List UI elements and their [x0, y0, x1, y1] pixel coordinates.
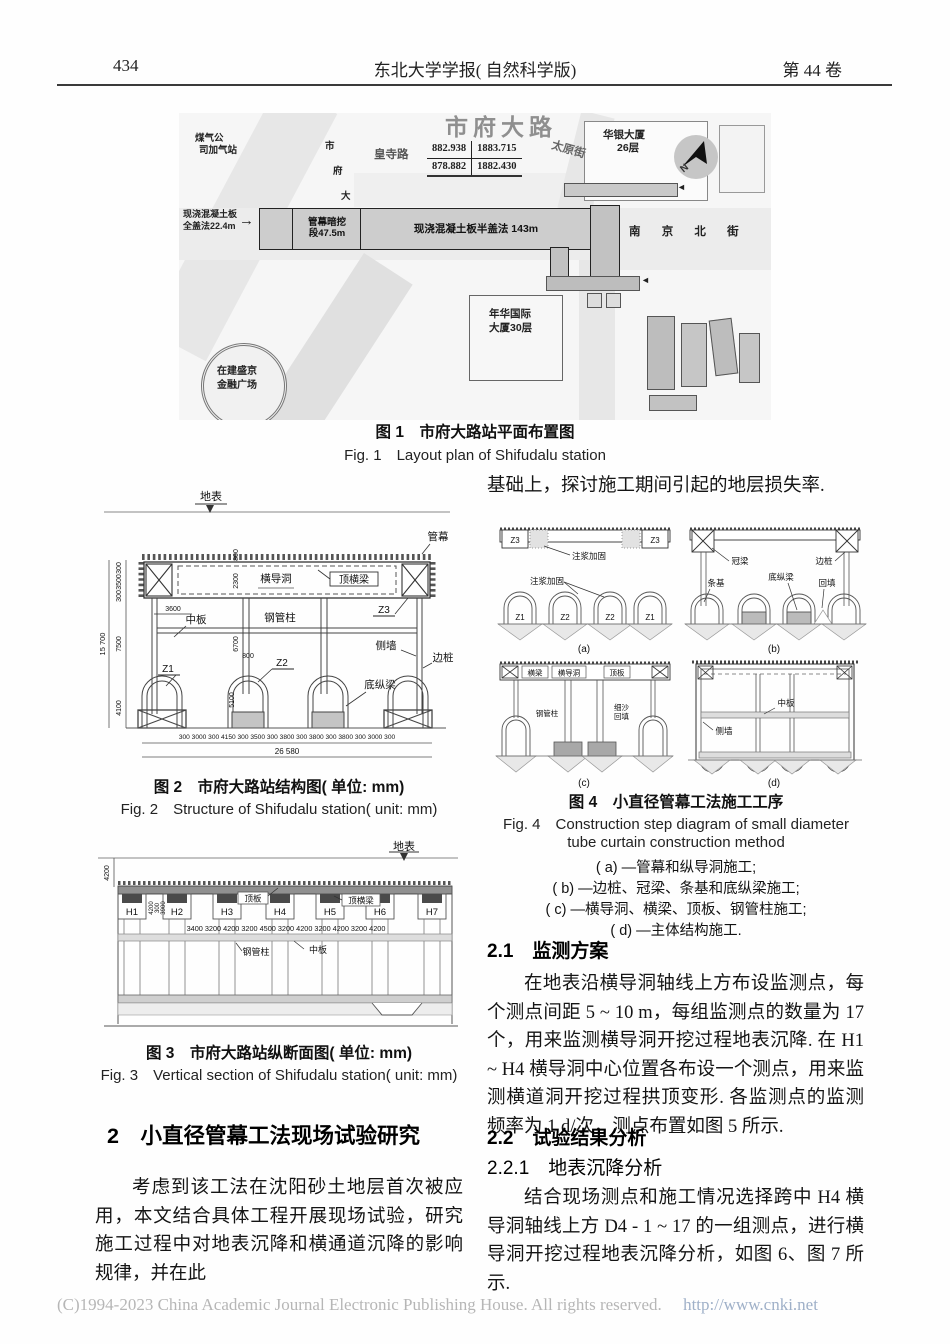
fig2-dim-5100: 5100: [229, 692, 236, 708]
fig4-caption-en1: Fig. 4 Construction step diagram of smal…: [487, 813, 865, 834]
fig4b-tag: (b): [768, 644, 780, 654]
fig4c-label-beam: 横梁: [528, 668, 543, 678]
fig2-dim-4100: 4100: [116, 700, 123, 716]
journal-page: 434 东北大学学报( 自然科学版) 第 44 卷 在建盛京 金融: [0, 0, 950, 1344]
fig4-note-a: ( a) —管幕和纵导洞施工;: [487, 858, 865, 879]
fig3-label-top-slab: 顶板: [244, 894, 262, 904]
fig2-caption-zh: 图 2 市府大路站结构图( 单位: mm): [96, 775, 462, 797]
section2-heading: 2 小直径管幕工法现场试验研究: [107, 1124, 420, 1150]
fig4-note-c: ( c) —横导洞、横梁、顶板、钢管柱施工;: [487, 900, 865, 921]
section22-heading: 2.2 试验结果分析: [487, 1128, 646, 1151]
fig2-label-side-pile: 边桩: [433, 651, 454, 664]
fig4c-label-slab: 顶板: [610, 668, 625, 678]
figure2-structure-drawing: 地表 管幕 横导洞 顶横梁 Z3 中板: [96, 482, 460, 772]
map-label-fullcover-2: 全盖法22.4m: [183, 221, 236, 233]
fig4d-corner-boxes: [698, 666, 852, 679]
volume-label: 第 44 卷: [783, 56, 843, 81]
fig4b-label-strip: 条基: [707, 578, 725, 588]
map-label-nianhua-1: 年华国际: [489, 308, 531, 322]
map-coordinates-table: 882.938 1883.715 878.882 1882.430: [427, 141, 522, 177]
fig2-dim-800b: 800: [242, 653, 254, 660]
fig2-label-cross-tunnel: 横导洞: [260, 572, 292, 585]
station-segment-1: [259, 208, 294, 250]
fig4b-mounds: [685, 624, 866, 640]
north-compass: N: [674, 135, 718, 179]
fig3-label-mid-slab: 中板: [309, 944, 327, 955]
fig4b-label-crown: 冠梁: [731, 556, 749, 566]
fig4a-z1-right: Z1: [645, 613, 655, 622]
fig4a-mounds: [498, 624, 672, 640]
map-label-shengjing-2: 金融广场: [217, 379, 257, 392]
fig2-label-mid-slab: 中板: [186, 613, 207, 626]
fig4a-z1-left: Z1: [515, 613, 525, 622]
station-segment-2: 管幕暗挖 段47.5m: [292, 208, 362, 250]
fig3-label-h2: H2: [171, 907, 183, 918]
station-segment-3: 现浇混凝土板半盖法 143m: [360, 208, 592, 250]
fig3-h-labels: H1 H2 H3 H4 H5 H6 H7: [126, 907, 438, 918]
fig3-dim-depth: 4200: [104, 865, 111, 881]
fig2-label-surface: 地表: [200, 489, 222, 503]
fig3-label-surface: 地表: [393, 839, 415, 853]
segment2-line1: 管幕暗挖: [308, 217, 346, 228]
fig2-dim-total-height: 15 700: [98, 633, 107, 656]
fig3-dim-3900: 3900: [161, 901, 167, 915]
fig4d-label-mid: 中板: [777, 698, 795, 708]
map-shifu-char-3: 大: [341, 191, 351, 203]
fig3-label-steel-col: 钢管柱: [242, 946, 269, 957]
map-label-fullcover-1: 现浇混凝土板: [183, 209, 237, 221]
fig2-label-side-wall: 侧墙: [376, 639, 397, 652]
fig4c-label-sand1: 细沙: [614, 702, 629, 712]
map-label-huayin-1: 华银大厦: [603, 129, 645, 143]
fig3-label-h4: H4: [274, 907, 286, 918]
coord-cell: 1883.715: [471, 141, 521, 158]
fig3-caption-zh: 图 3 市府大路站纵断面图( 单位: mm): [96, 1041, 462, 1063]
fig2-dim-3500: 3500: [116, 574, 123, 590]
fig2-label-steel-col: 钢管柱: [264, 611, 296, 624]
fig4a-label-z3b: Z3: [650, 536, 660, 545]
fig4a-z2-right: Z2: [605, 613, 615, 622]
map-label-gas-2: 司加气站: [199, 145, 237, 157]
fig3-label-top-beam: 顶横梁: [348, 896, 374, 906]
fig2-bottom-dim-row: 300 3000 300 4150 300 3500 300 3800 300 …: [179, 734, 396, 741]
section221-paragraph: 结合现场测点和施工情况选择跨中 H4 横导洞轴线上方 D4 - 1 ~ 17 的…: [487, 1184, 864, 1298]
fig4b-label-backfill: 回填: [818, 578, 836, 588]
map-arrow-right-icon: →: [239, 211, 254, 231]
figure1-map: 在建盛京 金融广场 煤气公 司加气站 市 府 大 路 皇寺路 市府大路 882.…: [179, 113, 771, 420]
fig4-subfigure-d: 中板 侧墙 (d): [682, 656, 868, 788]
map-label-shifudalu-big: 市府大路: [445, 113, 557, 143]
map-label-huangsi: 皇寺路: [374, 148, 409, 163]
fig2-dim-7500: 7500: [116, 636, 123, 652]
fig3-label-h5: H5: [324, 907, 336, 918]
coord-cell: 1882.430: [471, 159, 521, 176]
fig2-dim-2300: 2300: [233, 573, 240, 589]
fig2-caption-en: Fig. 2 Structure of Shifudalu station( u…: [96, 798, 462, 819]
cnki-url-link[interactable]: http://www.cnki.net: [683, 1295, 818, 1314]
fig4c-mounds: [496, 756, 673, 772]
fig1-caption-zh: 图 1 市府大路站平面布置图: [180, 420, 770, 442]
section2-paragraph: 考虑到该工法在沈阳砂土地层首次被应用，本文结合具体工程开展现场试验，研究施工过程…: [95, 1174, 463, 1288]
map-arrow-left-icon-1: ◄: [677, 182, 686, 194]
fig4a-arches: [504, 592, 666, 624]
fig2-dim-300a: 300: [116, 562, 123, 574]
fig3-stack-dims: 4200 300 3900: [149, 901, 167, 915]
fig4b-arches: [691, 594, 860, 624]
fig1-caption-en: Fig. 1 Layout plan of Shifudalu station: [180, 444, 770, 465]
fig3-label-h7: H7: [426, 907, 438, 918]
fig4d-tag: (d): [768, 778, 780, 788]
fig4b-label-bottom-beam: 底纵梁: [768, 572, 794, 582]
segment3-label: 现浇混凝土板半盖法 143m: [414, 223, 538, 235]
copyright-text: (C)1994-2023 China Academic Journal Elec…: [57, 1295, 662, 1314]
fig4-subfigure-a: Z3 Z3 注浆加固 注浆加固 Z1 Z2 Z2 Z1 (a): [492, 522, 678, 654]
fig4-subfigure-b: 冠梁 边桩 条基 底纵梁 回填 (b): [682, 522, 868, 654]
map-label-shengjing-1: 在建盛京: [217, 365, 257, 378]
fig2-dim-6700: 6700: [233, 636, 240, 652]
fig2-dim-300b: 300: [116, 590, 123, 602]
fig2-label-z1: Z1: [162, 664, 174, 675]
fig4c-label-tunnel: 横导洞: [558, 668, 581, 678]
map-label-nanjing: 南 京 北 街: [629, 225, 748, 240]
fig2-dim-total-width: 26 580: [275, 747, 300, 756]
fig4-subfigure-c: 横梁 横导洞 顶板 钢管柱 细沙 回填 (c): [492, 656, 678, 788]
map-shifu-char-1: 市: [325, 141, 335, 153]
fig3-caption-en: Fig. 3 Vertical section of Shifudalu sta…: [96, 1064, 462, 1085]
fig4c-arches: [502, 716, 667, 756]
fig2-label-z2: Z2: [276, 658, 288, 669]
fig2-label-z3: Z3: [378, 605, 390, 616]
fig4a-label-grout-low: 注浆加固: [530, 576, 564, 586]
fig4a-label-grout-top: 注浆加固: [572, 551, 606, 561]
fig4-note-d: ( d) —主体结构施工.: [487, 921, 865, 942]
fig4-notes: ( a) —管幕和纵导洞施工; ( b) —边桩、冠梁、条基和底纵梁施工; ( …: [487, 858, 865, 942]
fig3-dim-row: 3400 3200 4200 3200 4500 3200 4200 3200 …: [187, 924, 386, 933]
section221-heading: 2.2.1 地表沉降分析: [487, 1158, 662, 1181]
footer-copyright-line: (C)1994-2023 China Academic Journal Elec…: [57, 1295, 818, 1315]
north-arrow-icon: [674, 135, 718, 179]
map-label-huayin-2: 26层: [617, 142, 639, 156]
fig4d-mounds: [694, 760, 856, 774]
fig4d-label-wall: 侧墙: [715, 726, 733, 736]
fig2-dim-3600: 3600: [165, 606, 181, 613]
fig4a-z2-left: Z2: [560, 613, 570, 622]
fig2-label-top-beam: 顶横梁: [339, 573, 369, 586]
fig3-label-h6: H6: [374, 907, 386, 918]
figure3-section-drawing: 地表 4200: [96, 838, 462, 1038]
fig4b-label-pile: 边桩: [815, 556, 833, 566]
segment2-line2: 段47.5m: [309, 228, 345, 239]
fig2-label-curtain: 管幕: [428, 530, 449, 543]
fig4a-tag: (a): [578, 644, 590, 654]
coord-cell: 882.938: [427, 141, 471, 158]
fig4-caption-zh: 图 4 小直径管幕工法施工工序: [487, 790, 865, 812]
fig4c-label-steel-col: 钢管柱: [536, 708, 559, 718]
fig3-label-h1: H1: [126, 907, 138, 918]
section21-heading: 2.1 监测方案: [487, 941, 608, 964]
fig4a-label-z3: Z3: [510, 536, 520, 545]
header-rule: [57, 84, 892, 86]
right-column-continuation: 基础上，探讨施工期间引起的地层损失率.: [487, 472, 863, 501]
map-shifu-char-2: 府: [333, 166, 343, 178]
map-label-gas-1: 煤气公: [195, 133, 224, 145]
fig4c-label-sand2: 回填: [614, 711, 629, 721]
fig4-caption-en2: tube curtain construction method: [487, 834, 865, 851]
fig4c-tag: (c): [578, 778, 590, 788]
fig2-left-dims: 300 3500 300 7500 4100: [116, 562, 123, 716]
map-label-nianhua-2: 大厦30层: [489, 322, 532, 336]
coord-cell: 878.882: [427, 159, 471, 176]
fig4-note-b: ( b) —边桩、冠梁、条基和底纵梁施工;: [487, 879, 865, 900]
fig3-label-h3: H3: [221, 907, 233, 918]
map-arrow-left-icon-2: ◄: [641, 275, 650, 287]
section21-paragraph: 在地表沿横导洞轴线上方布设监测点，每个测点间距 5 ~ 10 m，每组监测点的数…: [487, 970, 864, 1141]
fig2-dim-800a: 800: [233, 549, 240, 561]
